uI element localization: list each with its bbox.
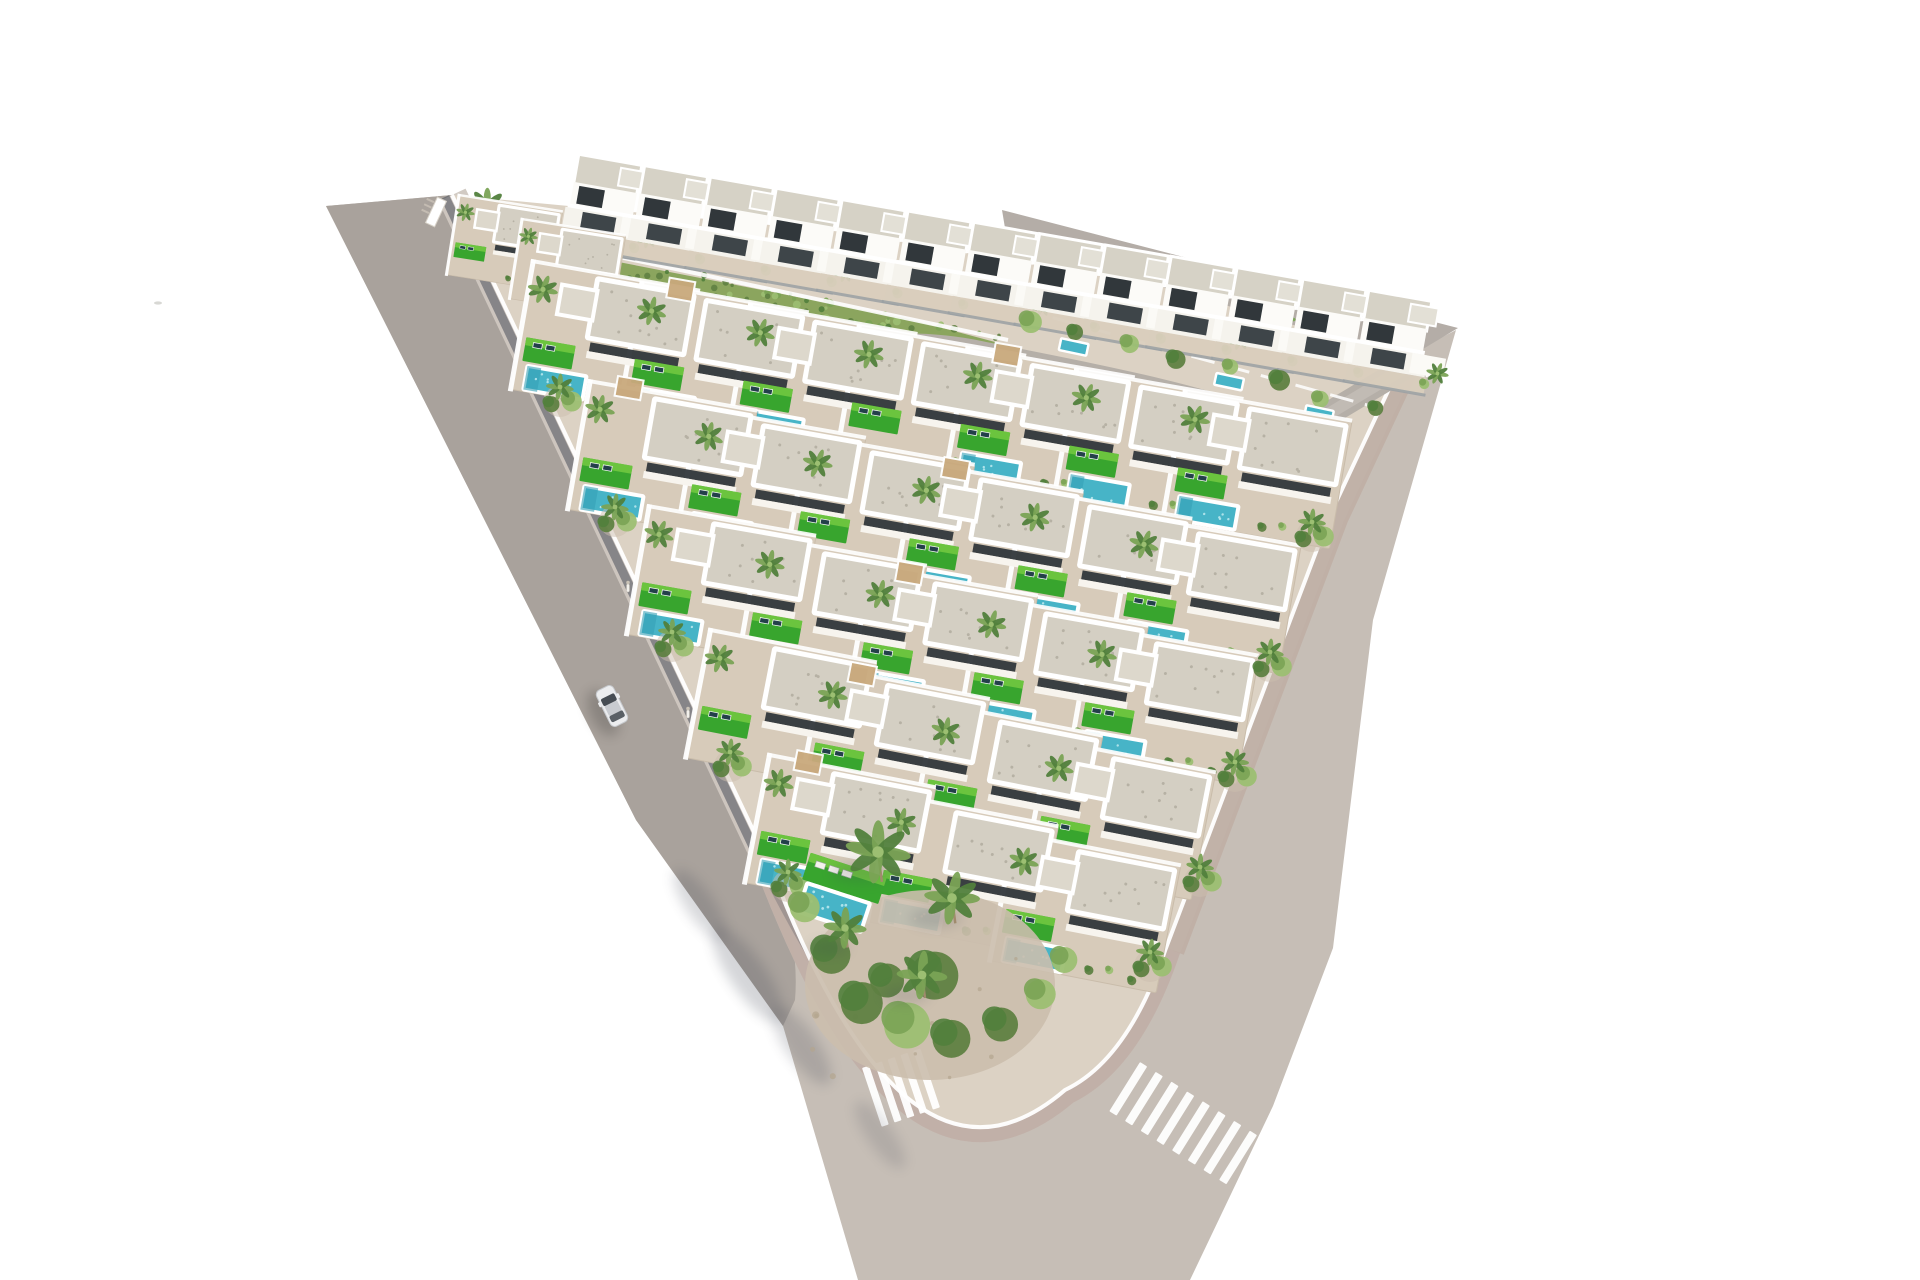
render-canvas [0,0,1920,1280]
aerial-development-render [0,0,1920,1280]
distant-bird [154,301,162,304]
pedestrian [686,707,690,718]
pedestrian [626,581,630,592]
